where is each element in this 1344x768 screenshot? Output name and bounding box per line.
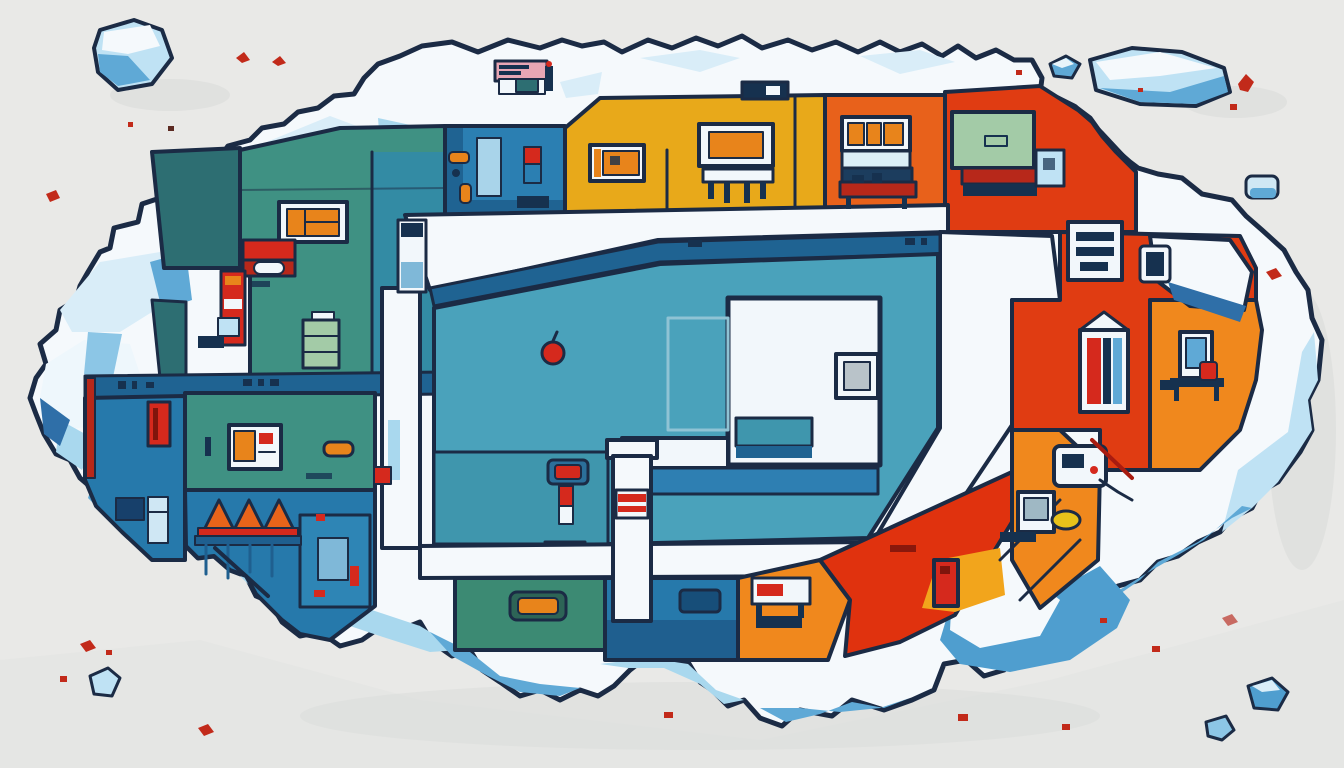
- iceberg-map-stage: [0, 0, 1344, 768]
- bl-red-locker-stripe: [153, 408, 158, 440]
- red-table-item-1: [852, 175, 864, 183]
- extinguisher-body: [559, 506, 573, 524]
- wall-tick-4: [243, 379, 252, 386]
- bl-red-locker: [148, 402, 170, 446]
- water-cooler-top: [401, 223, 423, 237]
- yellow-table-leg-3: [724, 182, 730, 203]
- locker-slot: [224, 299, 242, 309]
- room-dark-teal-corner: [152, 148, 240, 268]
- pool-tick-3: [921, 238, 927, 245]
- orange-pill-v: [460, 184, 471, 203]
- red-table-tr: [962, 168, 1038, 184]
- locker-orange: [225, 276, 241, 285]
- wall-tick-3: [146, 382, 154, 388]
- red-speck-17: [1100, 618, 1107, 623]
- locker-cyan-panel: [218, 318, 239, 336]
- iceberg-map-canvas: [0, 0, 1344, 768]
- bl-fridge: [148, 497, 168, 543]
- window-pane-2: [867, 123, 881, 145]
- red-speck-3: [168, 126, 174, 131]
- vanity-side-table: [1160, 380, 1176, 390]
- desk-red-1: [350, 566, 359, 586]
- vanity-leg-2: [1214, 387, 1219, 401]
- red-table-leg-1: [846, 197, 851, 209]
- red-band-scribble: [890, 545, 916, 552]
- red-locker-bc-mark: [940, 566, 950, 574]
- red-speck-12: [1016, 70, 1022, 75]
- blue-room-bc-band: [607, 620, 736, 658]
- white-table-bc-leg-1: [756, 604, 762, 618]
- comb-tr: [963, 184, 1037, 196]
- desk-inner: [318, 538, 348, 580]
- red-cabinet-top: [243, 240, 295, 260]
- vanity-chair: [1200, 362, 1217, 380]
- orange-room-red-table: [840, 182, 916, 197]
- mirror-slat-dark: [1103, 338, 1111, 404]
- desk-red-3: [314, 590, 325, 597]
- big-screen: [709, 132, 763, 158]
- roof-vent-slot: [766, 86, 780, 95]
- pink-machine-stripe-1: [499, 65, 529, 69]
- center-building-shadow: [622, 468, 878, 494]
- white-table-bc-red: [757, 584, 783, 596]
- small-screen: [603, 151, 639, 175]
- red-speck-7: [60, 676, 67, 682]
- red-cabinet-arch: [254, 262, 284, 274]
- mirror-slat-red: [1087, 338, 1101, 404]
- small-screen-bar: [594, 149, 601, 177]
- pink-machine-stripe-2: [499, 71, 521, 75]
- mint-machine: [952, 112, 1034, 168]
- orange-pill-h: [449, 152, 469, 163]
- red-speck-10: [664, 712, 673, 718]
- bl-navy-panel: [116, 498, 144, 520]
- red-button: [555, 465, 581, 479]
- red-pipe: [86, 378, 95, 478]
- red-speck-11: [958, 714, 968, 721]
- pillar-red-stripe-1: [618, 494, 646, 502]
- pool-wall-left: [382, 288, 420, 548]
- yellow-table-leg-2: [760, 182, 766, 199]
- wall-tick-5: [258, 379, 264, 386]
- pool-tick-1: [688, 240, 702, 247]
- cabinet-bl-orange: [234, 431, 255, 461]
- e-machine-bar-1: [1076, 232, 1114, 241]
- red-speck-15: [1230, 104, 1237, 110]
- tent-base: [198, 528, 298, 536]
- green-room-bc-pill: [518, 598, 558, 614]
- cyan-box-mark: [1043, 158, 1055, 170]
- orange-pill-bl: [324, 442, 353, 456]
- white-table-bc-leg-2: [798, 604, 804, 618]
- extinguisher-top: [559, 486, 573, 506]
- red-blue-machine-top: [524, 147, 541, 164]
- scribble-of: [252, 281, 270, 287]
- blue-room-bc-badge: [680, 590, 720, 612]
- white-table-bc-comb: [756, 616, 802, 628]
- red-table-item-2: [872, 173, 882, 183]
- blue-room-door: [477, 138, 501, 196]
- red-square-bl: [374, 467, 391, 484]
- yellow-table-leg-4: [744, 182, 750, 203]
- pillar-body: [613, 456, 651, 621]
- tent-shelf: [195, 536, 301, 545]
- pink-machine-screen: [516, 79, 538, 92]
- red-speck-5: [128, 122, 133, 127]
- red-table-leg-2: [902, 197, 907, 209]
- water-cooler-blue: [401, 262, 423, 288]
- mint-rack: [303, 320, 339, 368]
- yellow-table-leg-1: [708, 182, 714, 199]
- mirror-slat-blue: [1113, 338, 1122, 404]
- center-building-notch-shade: [736, 446, 812, 458]
- red-speck-20: [1152, 646, 1160, 652]
- scribble-bl: [306, 473, 332, 479]
- wall-tick-2: [132, 381, 137, 389]
- printer-panel: [1062, 454, 1084, 468]
- fruit-bowl: [1052, 511, 1080, 529]
- pink-machine-figure: [545, 66, 553, 91]
- red-speck-8: [106, 650, 112, 655]
- keypad-grid: [1146, 252, 1164, 276]
- island-shadow-bottom: [300, 682, 1100, 750]
- window-pane-1: [848, 123, 864, 145]
- roof-vent: [742, 82, 788, 99]
- locker-base: [198, 336, 224, 348]
- monitor-br-comb: [1000, 532, 1036, 542]
- pebble-right-blue: [1250, 188, 1276, 198]
- blue-room-panel: [517, 196, 549, 208]
- yellow-table-top: [703, 169, 773, 182]
- printer-dot: [1090, 466, 1098, 474]
- center-building-monitor: [844, 362, 870, 390]
- pool-tick-2: [905, 238, 915, 245]
- dark-knob: [452, 169, 460, 177]
- red-speck-19: [1062, 724, 1070, 730]
- pink-machine-figure-head: [546, 61, 552, 67]
- wall-tick-1: [118, 381, 126, 389]
- pillar-red-stripe-2: [618, 506, 646, 512]
- red-speck-13: [1138, 88, 1143, 92]
- orange-room-shelf: [842, 151, 910, 168]
- monitor-br-screen: [1024, 498, 1048, 520]
- cabinet-bl-red: [259, 433, 273, 444]
- red-ball: [542, 342, 564, 364]
- e-machine-bar-2: [1076, 247, 1114, 256]
- small-screen-mark: [610, 156, 620, 165]
- desk-red-2: [316, 514, 325, 521]
- door-mark-bl: [205, 437, 211, 456]
- window-pane-3: [884, 123, 903, 145]
- e-machine-bar-3: [1080, 262, 1108, 271]
- wall-tick-6: [270, 379, 279, 386]
- red-blue-machine-bot: [524, 164, 541, 183]
- center-building-notch: [736, 418, 812, 446]
